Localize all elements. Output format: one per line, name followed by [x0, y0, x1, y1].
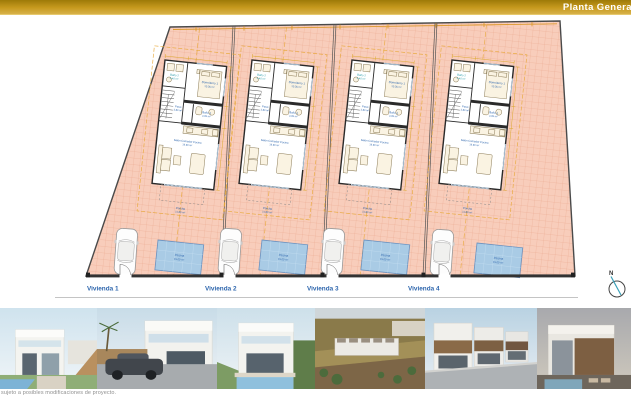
- north-arrow-icon: N: [609, 271, 625, 297]
- car-vivienda-1: [112, 228, 139, 276]
- label-vivienda-4: Vivienda 4: [408, 286, 440, 293]
- site-plan-drawing: Baño 2 3.40 m² Dormitorio 1 10.35 m² Pas…: [0, 0, 631, 305]
- label-vivienda-3: Vivienda 3: [307, 286, 339, 293]
- car-vivienda-4: [428, 229, 455, 277]
- photo-villa-car-render: [97, 308, 217, 389]
- car-vivienda-3: [319, 228, 346, 276]
- pool-vivienda-1: [155, 240, 204, 275]
- photo-villa-pool-render: [0, 308, 97, 389]
- page-title: Planta General: [563, 2, 631, 13]
- photo-dusk-villa-render: [537, 308, 631, 389]
- label-vivienda-1: Vivienda 1: [87, 286, 119, 293]
- north-label: N: [609, 271, 613, 277]
- label-vivienda-2: Vivienda 2: [205, 286, 237, 293]
- plan-sheet-page: Planta General: [0, 0, 631, 404]
- photo-aerial-render: [315, 308, 425, 389]
- unit-labels: Vivienda 1 Vivienda 2 Vivienda 3 Viviend…: [87, 286, 440, 293]
- disclaimer-text: sujeto a posibles modificaciones de proy…: [1, 390, 116, 396]
- pool-vivienda-2: [259, 240, 308, 275]
- photo-strip: [0, 308, 631, 389]
- photo-street-row-render: [425, 308, 537, 389]
- photo-villa-hedge-render: [217, 308, 315, 389]
- pool-vivienda-4: [474, 243, 523, 278]
- header-bar: Planta General: [0, 0, 631, 15]
- pool-vivienda-3: [361, 240, 410, 275]
- car-vivienda-2: [216, 228, 243, 276]
